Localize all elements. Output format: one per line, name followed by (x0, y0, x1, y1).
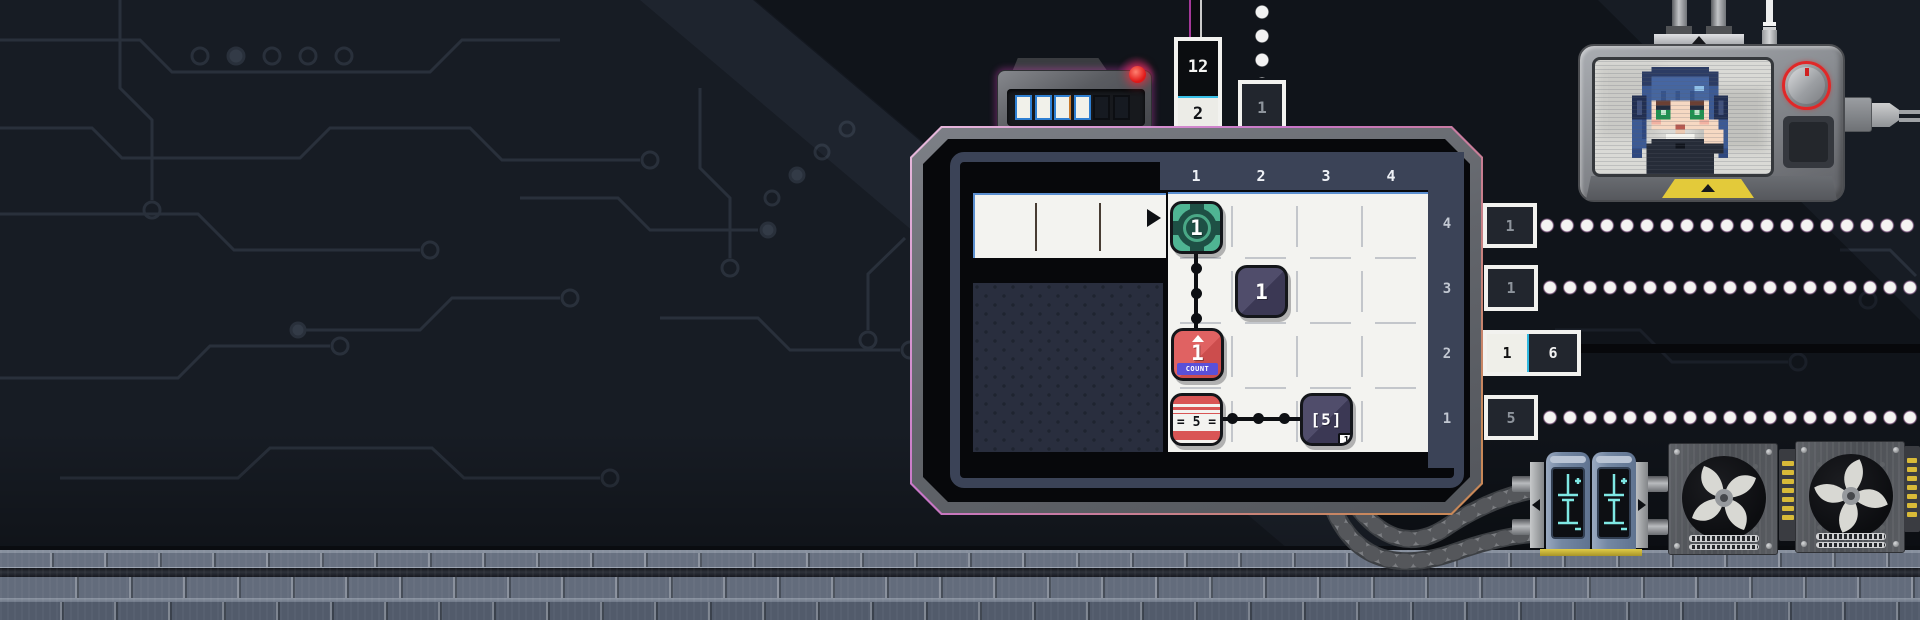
row3-output-value: 1 (1506, 279, 1515, 297)
left-arrow-icon (1532, 499, 1540, 511)
column1-next-value: 2 (1178, 98, 1218, 130)
pipe (1512, 476, 1532, 492)
target-node-value: 1 (1190, 216, 1203, 240)
counter-node[interactable]: 1 COUNT (1171, 328, 1224, 381)
value-node-value: 1 (1255, 280, 1268, 304)
fan-unit (1795, 441, 1905, 553)
vent-slot (1816, 533, 1886, 540)
pipe (1512, 519, 1532, 535)
column-label-1: 1 (1186, 167, 1206, 185)
input-cable (1189, 0, 1202, 39)
tray-slot-empty (1093, 95, 1110, 120)
vent-slot (1816, 542, 1886, 548)
right-arrow-icon (1638, 499, 1646, 511)
capacitor-glyph-icon (1553, 469, 1583, 537)
column1-input-counter: 12 2 (1174, 37, 1222, 134)
chain-dot (1253, 413, 1264, 424)
row2-output-box: 1 6 (1483, 330, 1581, 376)
row-label-3: 3 (1437, 280, 1457, 298)
tray-slot-filled (1054, 95, 1071, 120)
row1-output-box: 5 (1484, 395, 1538, 440)
chain-dot (1191, 288, 1202, 299)
chain-dot (1191, 263, 1202, 274)
capacitor-canister (1546, 452, 1590, 552)
capacitor-screen (1597, 467, 1631, 539)
row1-output-value: 5 (1506, 409, 1515, 427)
row2-wire (1581, 344, 1920, 353)
column-label-3: 3 (1316, 167, 1336, 185)
tray-slot-filled (1015, 95, 1032, 120)
column2-input-counter: 1 (1238, 80, 1286, 134)
capacitor-canister (1592, 452, 1636, 552)
row-label-4: 4 (1437, 215, 1457, 233)
tray-slot-filled (1074, 95, 1091, 120)
knob-tick-icon (1805, 68, 1809, 76)
array-node[interactable]: [5] 1 (1300, 393, 1353, 446)
tv-knob[interactable] (1782, 61, 1831, 110)
column-label-2: 2 (1251, 167, 1271, 185)
pipe (1646, 519, 1668, 535)
game-scene: 1 2 3 4 4 3 2 1 1 1 1 COUNT (0, 0, 1920, 620)
capacitor-glyph-icon (1599, 469, 1629, 537)
dot-chain-row3 (1543, 280, 1920, 295)
target-node[interactable]: 1 (1170, 201, 1223, 254)
vent-slot (1689, 535, 1759, 542)
fan-unit (1668, 443, 1778, 555)
crt-scanlines (1595, 60, 1771, 174)
floor (0, 550, 1920, 620)
row2-output-current: 1 (1487, 334, 1527, 372)
tray-slot-empty (1113, 95, 1130, 120)
row-label-1: 1 (1437, 410, 1457, 428)
plug-wire (1899, 110, 1920, 114)
vent-slot (1689, 544, 1759, 550)
dot-chain-row1 (1543, 410, 1920, 425)
row3-output-box: 1 (1484, 265, 1538, 311)
column1-remaining: 12 (1178, 41, 1218, 96)
heatsink-connector (1904, 446, 1920, 532)
fan-housing (1809, 454, 1893, 538)
chain-dot (1191, 313, 1202, 324)
dot-chain-row4 (1540, 218, 1920, 233)
array-node-value: [5] (1311, 410, 1343, 429)
pipe (1646, 476, 1668, 492)
tray-slot-filled (1035, 95, 1052, 120)
track-tick (1099, 203, 1101, 251)
dot-chain-vertical (1255, 0, 1269, 78)
value-node[interactable]: 1 (1235, 265, 1288, 318)
row2-output-target: 6 (1529, 334, 1577, 372)
play-arrow-icon (1147, 209, 1161, 227)
warning-triangle-icon (1701, 184, 1715, 192)
tv-speaker-grille (1783, 116, 1834, 168)
column2-value: 1 (1242, 84, 1282, 130)
battery-base (1540, 549, 1642, 556)
track-tick (1035, 203, 1037, 251)
side-panel (973, 283, 1163, 452)
tv-screen (1592, 57, 1774, 177)
up-triangle-icon (1692, 36, 1706, 44)
antenna-icon (1766, 0, 1773, 23)
equals-node-value: = 5 = (1173, 414, 1220, 431)
row-label-2: 2 (1437, 345, 1457, 363)
column-label-4: 4 (1381, 167, 1401, 185)
counter-node-label: COUNT (1177, 363, 1218, 375)
plug-wire (1899, 118, 1920, 122)
row4-output-box: 1 (1483, 203, 1537, 248)
counter-node-value: 1 (1191, 341, 1204, 365)
chain-dot (1279, 413, 1290, 424)
red-led-icon (1129, 66, 1146, 83)
capacitor-screen (1551, 467, 1585, 539)
fan-housing (1682, 456, 1766, 540)
input-track (973, 193, 1166, 258)
chain-dot (1227, 413, 1238, 424)
warning-sign (1662, 179, 1754, 198)
row4-output-value: 1 (1505, 217, 1514, 235)
equals-node[interactable]: = 5 = (1170, 393, 1223, 446)
